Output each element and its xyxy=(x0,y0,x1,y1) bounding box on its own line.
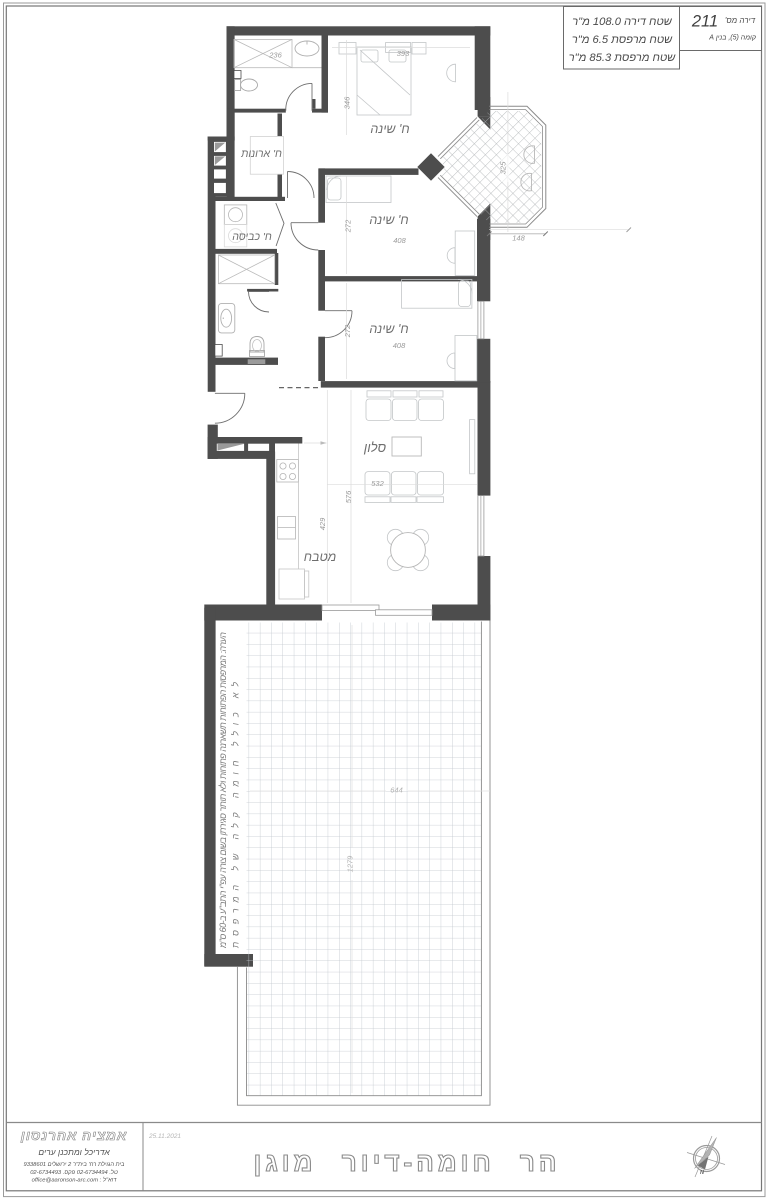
svg-text:272: 272 xyxy=(344,219,353,233)
svg-text:ח' שינה: ח' שינה xyxy=(370,122,409,136)
svg-text:25.11.2021: 25.11.2021 xyxy=(148,1133,181,1140)
svg-text:236: 236 xyxy=(268,51,282,60)
svg-text:644: 644 xyxy=(390,786,403,795)
svg-text:דירה מס': דירה מס' xyxy=(725,16,756,25)
svg-text:קומה (5), בנין A: קומה (5), בנין A xyxy=(708,35,756,42)
svg-text:532: 532 xyxy=(371,479,384,488)
svg-text:שטח מרפסת 85.3 מ"ר: שטח מרפסת 85.3 מ"ר xyxy=(569,52,677,64)
svg-text:שטח דירה 108.0 מ"ר: שטח דירה 108.0 מ"ר xyxy=(572,16,672,28)
svg-text:סלון: סלון xyxy=(363,440,387,455)
svg-text:429: 429 xyxy=(318,517,327,530)
svg-text:325: 325 xyxy=(499,161,508,174)
svg-text:טל. 02-6734494 פקס. 02-673449: טל. 02-6734494 פקס. 02-6734493 xyxy=(30,1169,118,1176)
svg-text:הערה: המרפסות הפתוחות תשארנה פ: הערה: המרפסות הפתוחות תשארנה פתוחות ולא … xyxy=(218,632,228,949)
svg-text:408: 408 xyxy=(393,236,406,245)
svg-text:576: 576 xyxy=(344,490,353,503)
svg-text:ח' ארונות: ח' ארונות xyxy=(240,148,282,160)
svg-text:346: 346 xyxy=(343,96,352,109)
svg-text:ח' כביסה: ח' כביסה xyxy=(232,231,272,243)
svg-text:1279: 1279 xyxy=(346,855,355,873)
svg-text:148: 148 xyxy=(512,234,525,243)
svg-text:272: 272 xyxy=(343,324,352,338)
svg-text:393: 393 xyxy=(397,49,410,58)
svg-text:ח' שינה: ח' שינה xyxy=(369,213,408,227)
svg-text:ח' שינה: ח' שינה xyxy=(369,322,408,336)
svg-text:הר חומה-דיור מוגן: הר חומה-דיור מוגן xyxy=(254,1147,561,1177)
svg-text:שטח מרפסת 6.5 מ"ר: שטח מרפסת 6.5 מ"ר xyxy=(572,34,673,46)
svg-text:408: 408 xyxy=(393,341,406,350)
svg-text:בית הגוילת רח' בית"ר 2 ירושל: בית הגוילת רח' בית"ר 2 ירושלים 9338601 xyxy=(23,1161,125,1168)
svg-text:אמציה אהרנסון: אמציה אהרנסון xyxy=(20,1128,127,1143)
svg-text:211: 211 xyxy=(691,13,718,31)
svg-text:דוא"ל : office@aaronson-arc.c: דוא"ל : office@aaronson-arc.com xyxy=(32,1177,118,1184)
svg-text:אדריכל ומתכנן ערים: אדריכל ומתכנן ערים xyxy=(38,1147,110,1157)
svg-text:מטבח: מטבח xyxy=(304,550,336,564)
